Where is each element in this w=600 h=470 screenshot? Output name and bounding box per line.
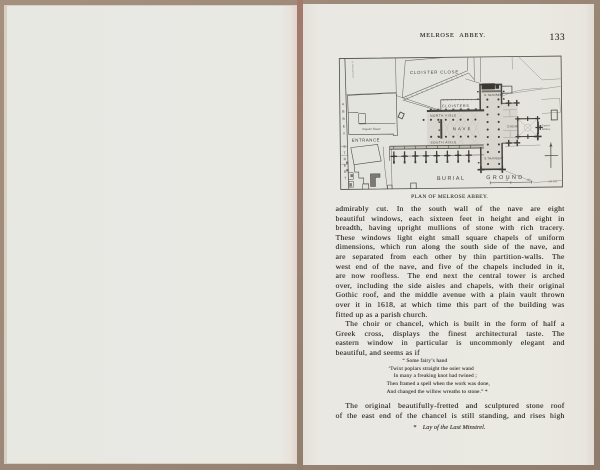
svg-text:T: T: [344, 176, 346, 180]
svg-text:Window: Window: [542, 128, 551, 131]
svg-text:CLOISTERS: CLOISTERS: [442, 104, 470, 108]
svg-text:ENTRANCE: ENTRANCE: [352, 137, 380, 142]
svg-text:Eastern: Eastern: [541, 124, 551, 127]
svg-text:NORTH AISLE: NORTH AISLE: [430, 113, 456, 117]
svg-text:CLOISTER CLOSE: CLOISTER CLOSE: [410, 69, 459, 75]
svg-text:S.TRANSEPT: S.TRANSEPT: [484, 156, 504, 160]
svg-text:100 Feet: 100 Feet: [548, 180, 557, 183]
svg-text:NAVE: NAVE: [453, 126, 473, 131]
svg-text:SOUTH AISLE: SOUTH AISLE: [431, 140, 457, 144]
svg-text:N.TRANSEPT: N.TRANSEPT: [484, 93, 504, 97]
svg-text:T: T: [343, 151, 345, 155]
svg-text:BURIAL: BURIAL: [437, 176, 466, 182]
svg-text:Esquire House: Esquire House: [361, 127, 381, 131]
svg-text:CHOIR: CHOIR: [507, 124, 519, 128]
